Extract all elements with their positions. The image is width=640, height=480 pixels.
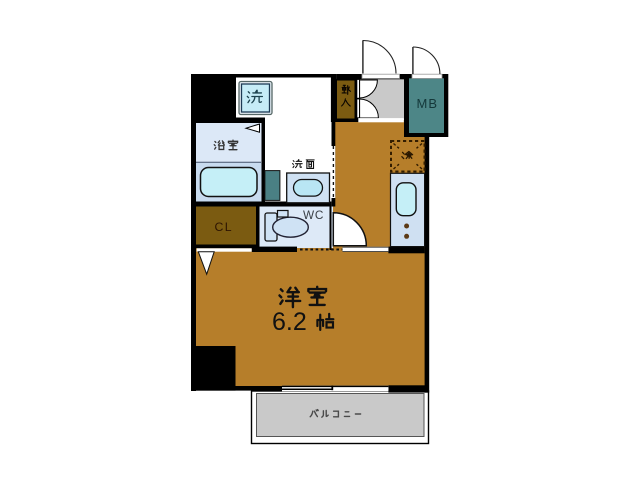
svg-text:WC: WC (303, 208, 324, 222)
svg-text:MB: MB (417, 96, 439, 111)
svg-text:6.2: 6.2 (272, 308, 307, 336)
svg-text:CL: CL (215, 220, 234, 234)
